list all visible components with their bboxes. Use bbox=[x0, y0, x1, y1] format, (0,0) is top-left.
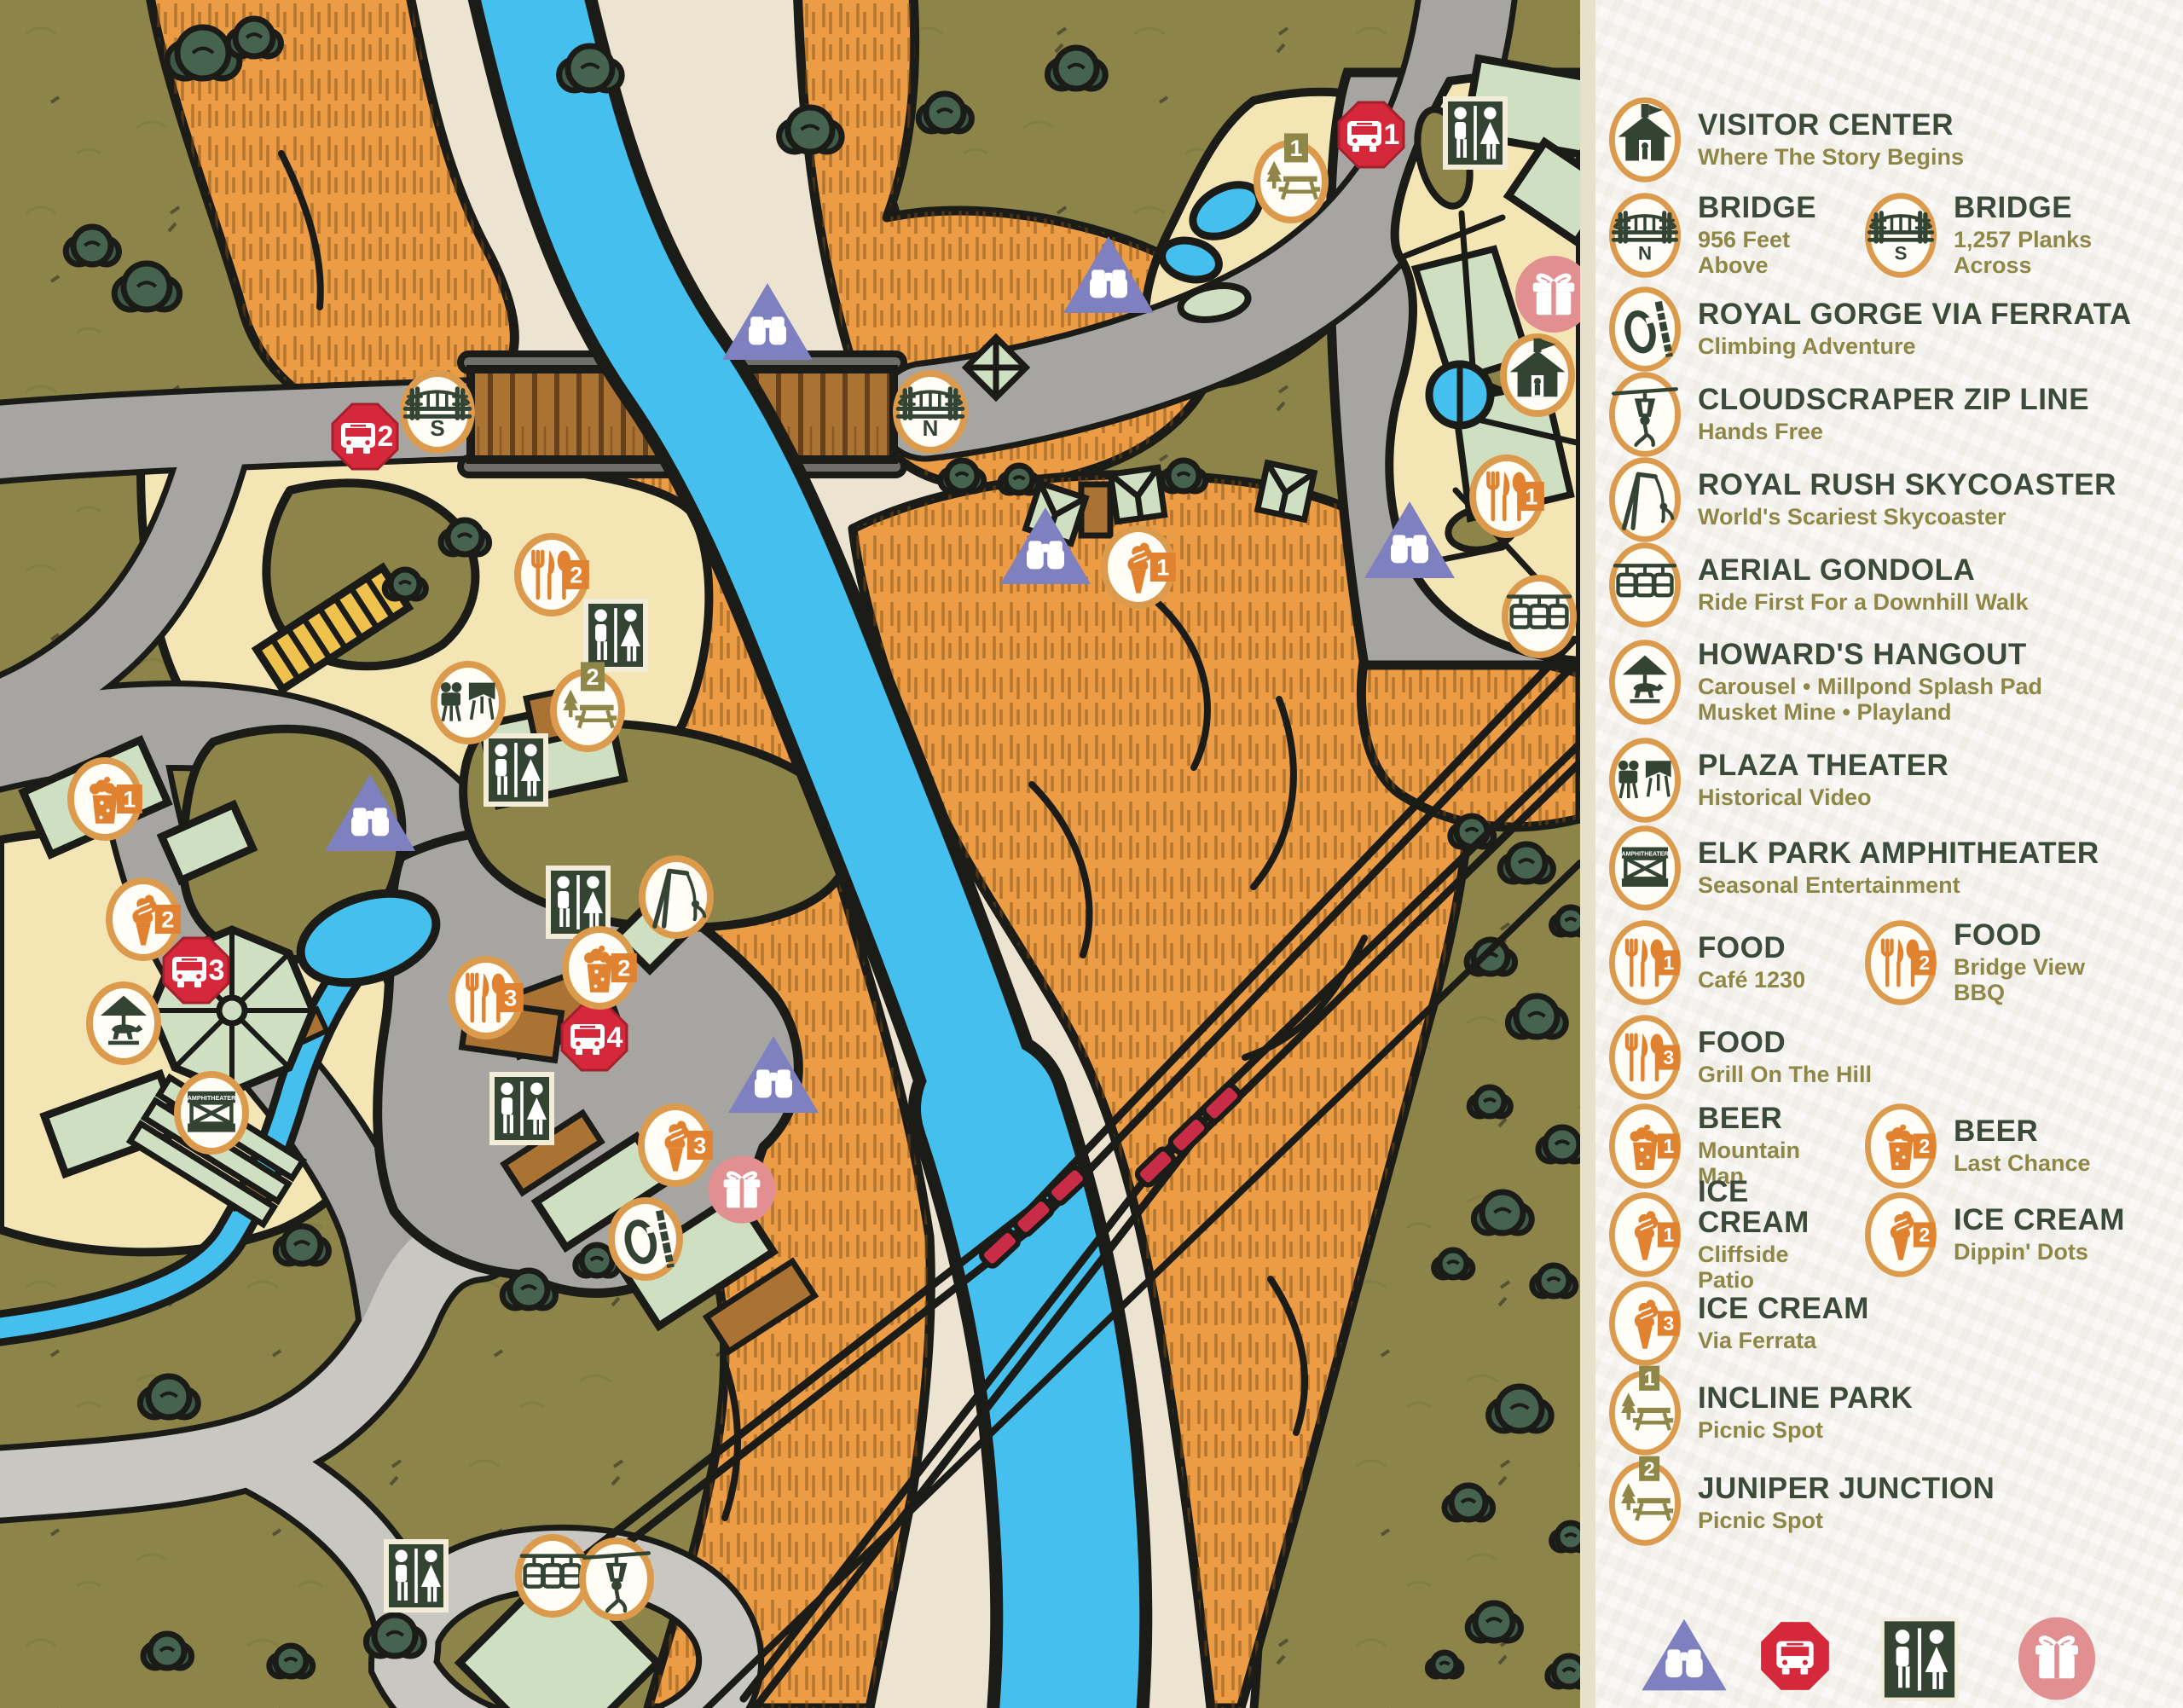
svg-text:1: 1 bbox=[1663, 952, 1674, 974]
svg-text:2: 2 bbox=[1919, 1135, 1930, 1157]
map-marker-food-3: 3 bbox=[452, 959, 524, 1036]
legend-title: FOOD bbox=[1698, 1028, 1872, 1059]
amphitheater-icon: AMPHITHEATER bbox=[1604, 819, 1686, 918]
map-marker-restroom bbox=[1443, 96, 1508, 170]
legend-row-amphitheater: AMPHITHEATER ELK PARK AMPHITHEATER Seaso… bbox=[1604, 824, 2168, 912]
bridge-north-icon: N bbox=[1604, 186, 1686, 285]
legend-subtitle: Bridge View BBQ bbox=[1954, 954, 2094, 1005]
legend-title: ICE CREAM bbox=[1698, 1177, 1860, 1240]
map-marker-zipline bbox=[582, 1541, 651, 1618]
svg-text:1: 1 bbox=[1156, 555, 1169, 581]
legend-row-ice-cream-1-2: 1 ICE CREAM Cliffside Patio 2 ICE CREAM … bbox=[1604, 1190, 2168, 1279]
map-marker-restroom bbox=[489, 1072, 554, 1145]
svg-text:2: 2 bbox=[586, 664, 599, 690]
map-marker-icecream-2: 2 bbox=[109, 881, 181, 958]
food-1-icon: 1 bbox=[1604, 913, 1686, 1012]
legend-title: BRIDGE bbox=[1954, 193, 2094, 224]
svg-text:2: 2 bbox=[570, 563, 582, 588]
bridge-south-icon: S bbox=[1860, 186, 1942, 285]
legend-title: AERIAL GONDOLA bbox=[1698, 555, 2029, 587]
ice-cream-1-icon: 1 bbox=[1604, 1185, 1686, 1284]
gift-shop-icon bbox=[2012, 1612, 2101, 1708]
legend-title: BRIDGE bbox=[1698, 193, 1838, 224]
legend-subtitle: Via Ferrata bbox=[1698, 1328, 1869, 1353]
plaza-theater-icon bbox=[1604, 731, 1686, 830]
map-marker-bridge-N: N bbox=[896, 373, 964, 450]
map-marker-restroom bbox=[484, 733, 548, 807]
juniper-junction-icon: 2 bbox=[1604, 1454, 1686, 1553]
svg-text:2: 2 bbox=[1919, 1224, 1930, 1246]
svg-text:S: S bbox=[430, 415, 444, 441]
svg-text:2: 2 bbox=[617, 956, 630, 981]
legend-subtitle: Climbing Adventure bbox=[1698, 333, 2132, 359]
legend-title: JUNIPER JUNCTION bbox=[1698, 1474, 1995, 1505]
map-marker-visitor bbox=[1503, 337, 1572, 414]
svg-text:3: 3 bbox=[1663, 1312, 1674, 1335]
svg-text:1: 1 bbox=[123, 787, 136, 813]
beer-2-icon: 2 bbox=[1860, 1097, 1942, 1196]
map-marker-gondola bbox=[518, 1537, 587, 1614]
map-marker-beer-2: 2 bbox=[565, 929, 637, 1006]
park-map-poster: 1 2 3 4SN1221312213AMPHITHEATER VISITOR … bbox=[0, 0, 2183, 1708]
svg-text:1: 1 bbox=[1525, 484, 1537, 510]
shuttle-icon bbox=[1751, 1612, 1839, 1705]
legend-subtitle: Café 1230 bbox=[1698, 967, 1805, 993]
legend-title: INCLINE PARK bbox=[1698, 1383, 1913, 1415]
svg-text:1: 1 bbox=[1289, 136, 1302, 161]
legend-footer: View Shuttle Restroom Gift Shop bbox=[1604, 1612, 2168, 1708]
legend-title: FOOD bbox=[1954, 920, 2094, 952]
legend-row-juniper-junction: 2 JUNIPER JUNCTION Picnic Spot bbox=[1604, 1458, 2168, 1549]
carousel-icon bbox=[1604, 633, 1686, 732]
map-marker-gift bbox=[708, 1155, 775, 1223]
map-marker-restroom bbox=[583, 599, 648, 672]
legend-subtitle: Carousel • Millpond Splash Pad bbox=[1698, 674, 2042, 699]
map-marker-bus-2: 2 bbox=[333, 404, 397, 469]
via-ferrata-icon bbox=[1604, 280, 1686, 379]
tree-cluster bbox=[1427, 1653, 1462, 1676]
map-marker-carabiner bbox=[611, 1201, 680, 1277]
restroom-icon bbox=[1874, 1612, 1965, 1708]
map-marker-icecream-1: 1 bbox=[1104, 529, 1176, 605]
legend-subtitle: Picnic Spot bbox=[1698, 1417, 1913, 1443]
legend-subtitle: 1,257 Planks Across bbox=[1954, 227, 2094, 278]
map-marker-restroom bbox=[384, 1539, 449, 1612]
legend-subtitle: 956 Feet Above bbox=[1698, 227, 1838, 278]
legend-title: PLAZA THEATER bbox=[1698, 750, 1948, 782]
legend-row-food-1-2: 1 FOOD Café 1230 2 FOOD Bridge View BBQ bbox=[1604, 912, 2168, 1013]
ice-cream-2-icon: 2 bbox=[1860, 1185, 1942, 1284]
footer-view: View bbox=[1638, 1612, 1730, 1708]
legend-title: HOWARD'S HANGOUT bbox=[1698, 640, 2042, 671]
food-2-icon: 2 bbox=[1860, 913, 1942, 1012]
legend-title: ELK PARK AMPHITHEATER bbox=[1698, 838, 2099, 870]
legend-subtitle: Hands Free bbox=[1698, 419, 2089, 444]
legend-row-skycoaster: ROYAL RUSH SKYCOASTER World's Scariest S… bbox=[1604, 457, 2168, 542]
legend-subtitle: Seasonal Entertainment bbox=[1698, 872, 2099, 898]
footer-shuttle: Shuttle bbox=[1751, 1612, 1839, 1708]
svg-text:2: 2 bbox=[161, 907, 174, 933]
legend-title: ROYAL RUSH SKYCOASTER bbox=[1698, 470, 2116, 501]
map-marker-gondola bbox=[1505, 578, 1573, 655]
map-marker-icecream-3: 3 bbox=[641, 1107, 713, 1184]
view-icon bbox=[1638, 1612, 1730, 1708]
legend-row-food-3: 3 FOOD Grill On The Hill bbox=[1604, 1013, 2168, 1102]
park-map: 1 2 3 4SN1221312213AMPHITHEATER bbox=[0, 0, 1580, 1708]
incline-park-icon: 1 bbox=[1604, 1364, 1686, 1462]
svg-text:4: 4 bbox=[607, 1022, 623, 1054]
legend-subtitle: World's Scariest Skycoaster bbox=[1698, 504, 2116, 530]
legend-panel: VISITOR CENTER Where The Story Begins N … bbox=[1580, 0, 2183, 1708]
legend-title: ROYAL GORGE VIA FERRATA bbox=[1698, 299, 2132, 331]
legend-title: BEER bbox=[1954, 1116, 2091, 1148]
map-marker-bridge-S: S bbox=[403, 373, 472, 450]
map-marker-amph: AMPHITHEATER bbox=[177, 1074, 246, 1151]
svg-text:AMPHITHEATER: AMPHITHEATER bbox=[188, 1094, 236, 1102]
legend-row-bridges: N BRIDGE 956 Feet Above S BRIDGE 1,257 P… bbox=[1604, 184, 2168, 287]
legend-title: CLOUDSCRAPER ZIP LINE bbox=[1698, 385, 2089, 416]
svg-text:3: 3 bbox=[209, 954, 225, 987]
legend-subtitle: Musket Mine • Playland bbox=[1698, 699, 2042, 725]
map-marker-bus-3: 3 bbox=[164, 938, 229, 1003]
svg-text:2: 2 bbox=[1644, 1457, 1655, 1479]
legend-row-incline-park: 1 INCLINE PARK Picnic Spot bbox=[1604, 1368, 2168, 1458]
svg-text:2: 2 bbox=[1919, 952, 1930, 974]
map-marker-theater bbox=[434, 664, 502, 741]
aerial-gondola-icon bbox=[1604, 536, 1686, 634]
map-marker-beer-1: 1 bbox=[71, 761, 142, 837]
legend-subtitle: Historical Video bbox=[1698, 785, 1948, 810]
legend-row-gondola: AERIAL GONDOLA Ride First For a Downhill… bbox=[1604, 542, 2168, 628]
svg-text:1: 1 bbox=[1384, 119, 1400, 151]
legend-subtitle: Grill On The Hill bbox=[1698, 1062, 1872, 1087]
legend-row-via-ferrata: ROYAL GORGE VIA FERRATA Climbing Adventu… bbox=[1604, 287, 2168, 372]
legend-subtitle: Picnic Spot bbox=[1698, 1508, 1995, 1533]
map-marker-bus-1: 1 bbox=[1339, 102, 1404, 167]
legend-subtitle: Dippin' Dots bbox=[1954, 1239, 2094, 1265]
svg-text:3: 3 bbox=[504, 986, 517, 1011]
legend-subtitle: Last Chance bbox=[1954, 1150, 2091, 1176]
legend-subtitle: Cliffside Patio bbox=[1698, 1242, 1838, 1293]
legend-title: VISITOR CENTER bbox=[1698, 110, 1964, 142]
footer-restroom: Restroom bbox=[1860, 1612, 1979, 1708]
visitor-center-icon bbox=[1604, 90, 1686, 189]
skycoaster-icon bbox=[1604, 450, 1686, 549]
svg-text:1: 1 bbox=[1663, 1224, 1674, 1246]
svg-text:1: 1 bbox=[1644, 1367, 1655, 1389]
svg-text:S: S bbox=[1895, 243, 1908, 264]
map-marker-bus-4: 4 bbox=[562, 1005, 627, 1070]
legend-row-plaza-theater: PLAZA THEATER Historical Video bbox=[1604, 737, 2168, 824]
legend-subtitle: Ride First For a Downhill Walk bbox=[1698, 589, 2029, 615]
svg-text:N: N bbox=[923, 415, 939, 441]
svg-text:1: 1 bbox=[1663, 1135, 1674, 1157]
zip-line-icon bbox=[1604, 365, 1686, 464]
svg-text:2: 2 bbox=[378, 420, 394, 453]
legend-title: BEER bbox=[1698, 1103, 1838, 1135]
map-marker-food-2: 2 bbox=[518, 536, 589, 613]
footer-gift-shop: Gift Shop bbox=[2000, 1612, 2115, 1708]
svg-text:3: 3 bbox=[693, 1133, 706, 1159]
map-marker-food-1: 1 bbox=[1473, 458, 1544, 535]
legend-row-visitor-center: VISITOR CENTER Where The Story Begins bbox=[1604, 96, 2168, 184]
ice-cream-3-icon: 3 bbox=[1604, 1274, 1686, 1373]
svg-text:N: N bbox=[1638, 243, 1652, 264]
food-3-icon: 3 bbox=[1604, 1008, 1686, 1107]
svg-text:3: 3 bbox=[1663, 1046, 1674, 1068]
legend-subtitle: Where The Story Begins bbox=[1698, 144, 1964, 170]
map-marker-sky bbox=[642, 859, 710, 935]
legend-title: FOOD bbox=[1698, 933, 1805, 964]
legend-title: ICE CREAM bbox=[1698, 1294, 1869, 1325]
legend-row-howards-hangout: HOWARD'S HANGOUT Carousel • Millpond Spl… bbox=[1604, 628, 2168, 737]
legend-row-zip-line: CLOUDSCRAPER ZIP LINE Hands Free bbox=[1604, 372, 2168, 457]
legend-title: ICE CREAM bbox=[1954, 1205, 2125, 1236]
map-marker-carousel bbox=[90, 985, 158, 1062]
